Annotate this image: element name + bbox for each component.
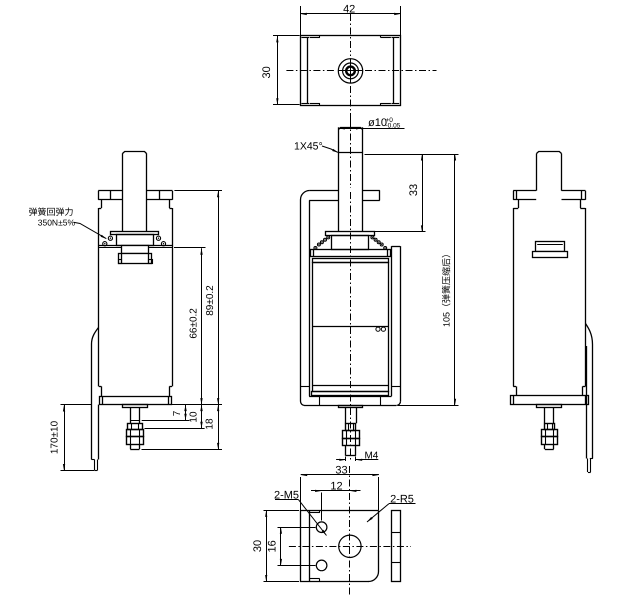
svg-text:66±0.2: 66±0.2 bbox=[188, 308, 199, 339]
svg-text:10: 10 bbox=[188, 411, 199, 423]
svg-text:弹簧回弹力: 弹簧回弹力 bbox=[28, 207, 73, 217]
svg-text:42: 42 bbox=[343, 3, 355, 15]
svg-text:7: 7 bbox=[172, 410, 183, 416]
svg-text:33: 33 bbox=[335, 464, 347, 476]
svg-text:16: 16 bbox=[267, 540, 279, 552]
svg-text:89±0.2: 89±0.2 bbox=[205, 285, 216, 316]
svg-text:M4: M4 bbox=[364, 450, 378, 461]
svg-text:18: 18 bbox=[205, 418, 216, 430]
svg-text:105（弹簧压缩后）: 105（弹簧压缩后） bbox=[442, 249, 452, 327]
svg-text:ø10: ø10 bbox=[368, 117, 387, 129]
svg-text:-0.05: -0.05 bbox=[386, 122, 401, 129]
svg-text:170±10: 170±10 bbox=[50, 420, 61, 454]
svg-text:12: 12 bbox=[330, 480, 342, 492]
svg-text:30: 30 bbox=[261, 66, 273, 78]
svg-text:1X45°: 1X45° bbox=[294, 141, 323, 153]
svg-text:350N±5%: 350N±5% bbox=[38, 218, 76, 228]
svg-text:30: 30 bbox=[252, 540, 264, 552]
svg-text:33: 33 bbox=[408, 184, 420, 196]
